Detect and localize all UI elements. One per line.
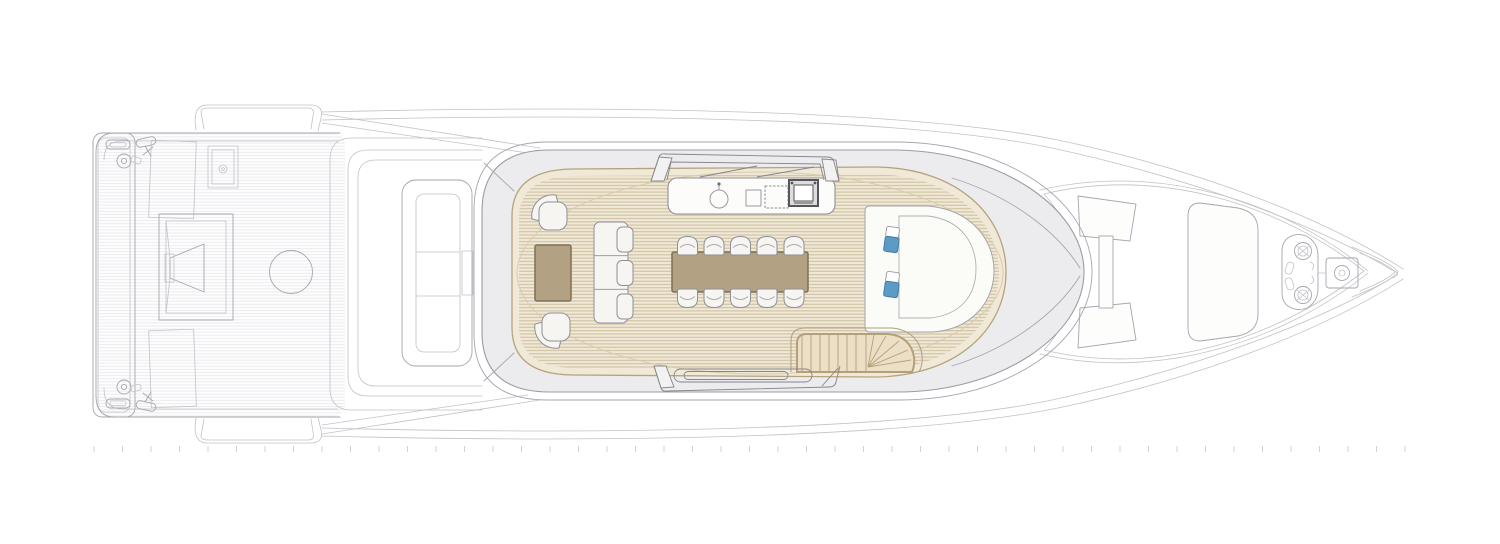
dining-chair (731, 289, 751, 308)
dining-chair (731, 237, 751, 256)
chain-hatch (1318, 258, 1358, 288)
yacht-deck-plan (0, 0, 1500, 544)
scale-ruler (94, 446, 1405, 452)
dining-chair (678, 289, 698, 308)
dining-chair (704, 289, 724, 308)
stern-wing-bottom (195, 417, 321, 443)
helm-seat (883, 226, 900, 253)
aft-deck-pattern (97, 133, 345, 417)
coffee-table (535, 245, 571, 301)
foredeck-walkway (1078, 196, 1136, 348)
bar-grill (789, 180, 818, 206)
dining-area (672, 237, 808, 308)
superstructure-outline (330, 138, 482, 410)
helm-station (865, 206, 994, 332)
dining-table (672, 252, 808, 292)
anchor-windlass (1282, 234, 1318, 309)
dining-chair (784, 237, 804, 256)
wet-bar (668, 178, 835, 214)
bow-tip (1352, 247, 1398, 297)
stern-section (93, 105, 540, 443)
dining-chair (757, 237, 777, 256)
dining-chair (678, 237, 698, 256)
lounge-sofa (594, 222, 633, 323)
dining-chair (757, 289, 777, 308)
yacht-deck-plan-svg (0, 0, 1500, 544)
bow-sunpad (1188, 203, 1258, 341)
helm-seat (883, 271, 900, 298)
dining-chair (784, 289, 804, 308)
dining-chair (704, 237, 724, 256)
foredeck (1040, 181, 1398, 363)
stern-wing-top (195, 105, 321, 131)
main-deck-sofa (402, 180, 473, 366)
helm-console (865, 206, 994, 332)
